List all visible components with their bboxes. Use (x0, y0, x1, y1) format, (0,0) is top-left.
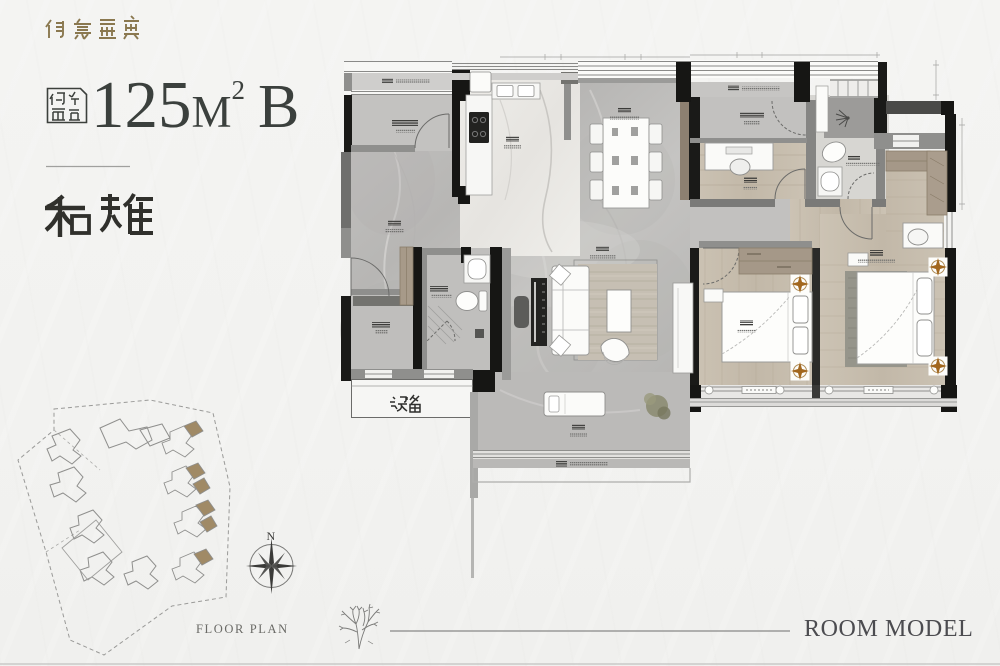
svg-text:ROOM MODEL: ROOM MODEL (804, 616, 973, 642)
svg-text:FLOOR PLAN: FLOOR PLAN (196, 622, 289, 636)
svg-text:125M2B: 125M2B (91, 68, 299, 142)
svg-text:N: N (267, 529, 276, 543)
